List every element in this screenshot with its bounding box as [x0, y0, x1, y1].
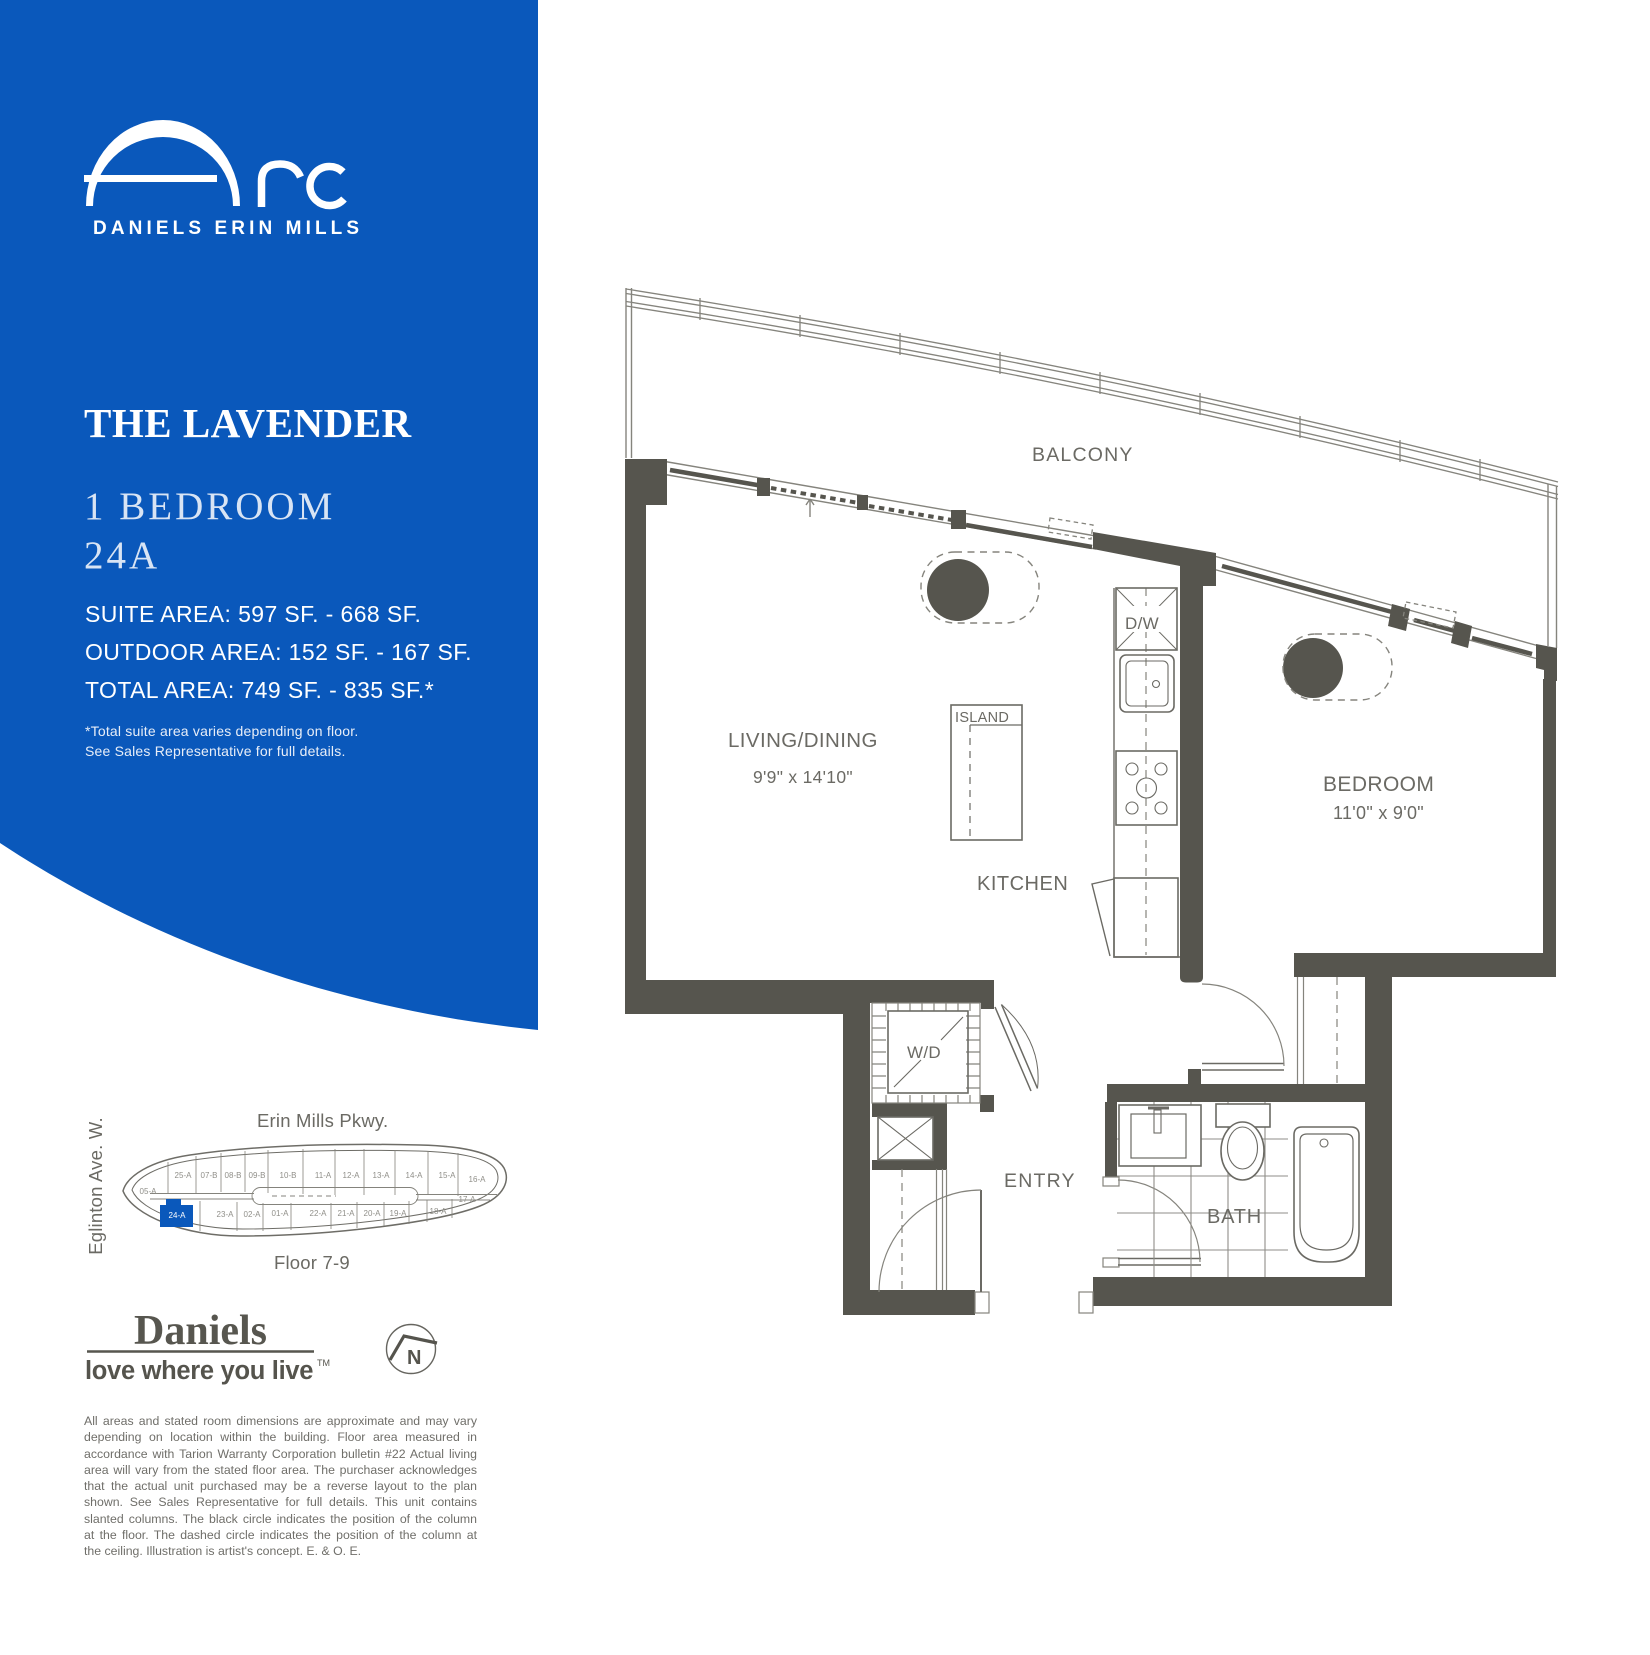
- svg-text:12-A: 12-A: [343, 1171, 361, 1180]
- svg-text:17-A: 17-A: [459, 1195, 477, 1204]
- svg-text:ISLAND: ISLAND: [955, 710, 1009, 726]
- svg-text:Erin Mills Pkwy.: Erin Mills Pkwy.: [257, 1110, 388, 1131]
- svg-text:22-A: 22-A: [310, 1209, 328, 1218]
- svg-text:DANIELS ERIN MILLS: DANIELS ERIN MILLS: [93, 218, 363, 239]
- svg-text:THE LAVENDER: THE LAVENDER: [84, 400, 412, 446]
- svg-text:11'0" x 9'0": 11'0" x 9'0": [1333, 803, 1424, 823]
- svg-text:TOTAL AREA: 749 SF. - 835 SF.*: TOTAL AREA: 749 SF. - 835 SF.*: [85, 677, 434, 703]
- svg-text:SUITE AREA: 597 SF. - 668 SF.: SUITE AREA: 597 SF. - 668 SF.: [85, 601, 421, 627]
- svg-text:07-B: 07-B: [201, 1171, 218, 1180]
- svg-text:19-A: 19-A: [390, 1209, 408, 1218]
- svg-text:02-A: 02-A: [244, 1210, 262, 1219]
- svg-text:05-A: 05-A: [140, 1187, 158, 1196]
- svg-text:21-A: 21-A: [338, 1209, 356, 1218]
- svg-text:20-A: 20-A: [364, 1209, 382, 1218]
- svg-text:10-B: 10-B: [280, 1171, 297, 1180]
- svg-text:N: N: [407, 1347, 421, 1369]
- svg-text:Eglinton Ave. W.: Eglinton Ave. W.: [85, 1117, 106, 1255]
- svg-text:24A: 24A: [84, 534, 160, 577]
- svg-text:love where you live: love where you live: [85, 1357, 313, 1385]
- svg-text:Floor 7-9: Floor 7-9: [274, 1252, 350, 1273]
- svg-text:BALCONY: BALCONY: [1032, 444, 1134, 466]
- svg-text:Daniels: Daniels: [134, 1308, 267, 1354]
- svg-text:D/W: D/W: [1125, 614, 1159, 633]
- svg-text:See Sales Representative for f: See Sales Representative for full detail…: [85, 743, 346, 759]
- svg-text:01-A: 01-A: [272, 1209, 290, 1218]
- svg-text:11-A: 11-A: [315, 1171, 332, 1180]
- svg-text:16-A: 16-A: [469, 1175, 487, 1184]
- svg-text:*Total suite area varies depen: *Total suite area varies depending on fl…: [85, 723, 358, 739]
- svg-text:14-A: 14-A: [406, 1171, 424, 1180]
- svg-text:15-A: 15-A: [439, 1171, 457, 1180]
- svg-text:24-A: 24-A: [169, 1211, 187, 1220]
- svg-text:KITCHEN: KITCHEN: [977, 873, 1068, 895]
- svg-text:9'9" x 14'10": 9'9" x 14'10": [753, 767, 853, 787]
- svg-text:BEDROOM: BEDROOM: [1323, 773, 1434, 796]
- svg-text:BATH: BATH: [1207, 1206, 1262, 1228]
- svg-text:13-A: 13-A: [373, 1171, 391, 1180]
- svg-text:08-B: 08-B: [225, 1171, 242, 1180]
- svg-text:18-A: 18-A: [430, 1207, 448, 1216]
- svg-text:OUTDOOR AREA: 152 SF. - 167 SF: OUTDOOR AREA: 152 SF. - 167 SF.: [85, 639, 472, 665]
- svg-text:1 BEDROOM: 1 BEDROOM: [84, 485, 335, 528]
- svg-text:ENTRY: ENTRY: [1004, 1170, 1076, 1192]
- svg-text:09-B: 09-B: [249, 1171, 266, 1180]
- svg-text:23-A: 23-A: [217, 1210, 235, 1219]
- svg-text:25-A: 25-A: [175, 1171, 193, 1180]
- svg-text:TM: TM: [317, 1358, 330, 1368]
- svg-text:LIVING/DINING: LIVING/DINING: [728, 729, 878, 752]
- svg-text:W/D: W/D: [907, 1043, 941, 1062]
